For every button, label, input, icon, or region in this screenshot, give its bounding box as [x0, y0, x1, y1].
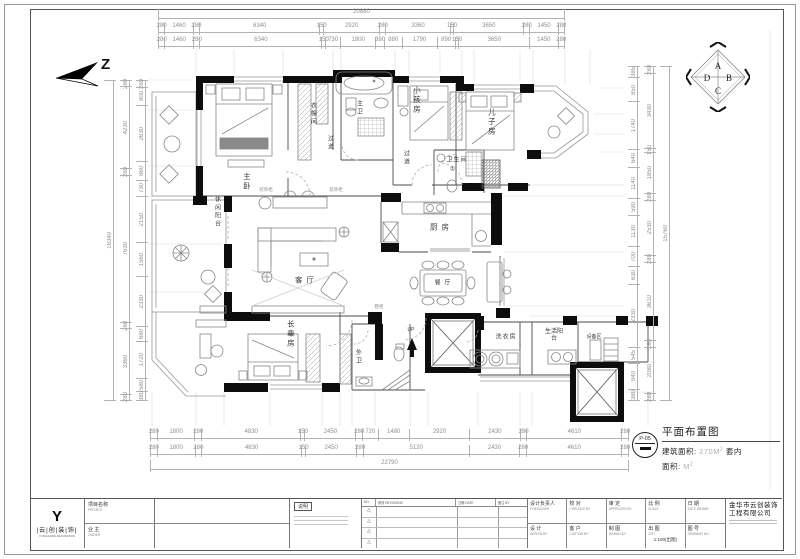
project-owner-labels: 项目名称 PROJECT 业 主 OWNER	[85, 499, 155, 548]
company-name-cell: 金华市云创装饰 工程有限公司	[726, 499, 782, 548]
dim-left-total: 16340	[104, 80, 116, 401]
dim-right-total: 15760	[660, 66, 672, 401]
owner-label: 业 主	[88, 526, 151, 533]
compass-diamond-icon	[686, 42, 750, 112]
room-label-master-bath: 主卫	[355, 100, 362, 116]
signature-cell: 设计负责人F.DESIGNER	[528, 499, 567, 524]
suite-area-line: 面积: M2	[662, 461, 782, 472]
compass-letter-c: C	[715, 86, 721, 96]
notes-box: 说明	[290, 499, 362, 548]
room-label-service-balcony: 生活阳台	[543, 329, 565, 343]
drawing-number-bubble: P-05	[632, 432, 658, 458]
notes-title: 说明	[294, 502, 312, 511]
room-label-equipment: 设备区	[586, 335, 601, 341]
logo-subtitle: YUNCHUANG DECORATION	[39, 534, 75, 538]
company-logo: Y |云|创|装|饰| YUNCHUANG DECORATION	[30, 499, 85, 548]
room-label-corridor-2: 过道	[402, 150, 409, 166]
building-area-line: 建筑面积: 270M2 套内	[662, 446, 782, 457]
drawing-title: 平面布置图	[662, 424, 780, 442]
drawing-info: P-05 平面布置图 建筑面积: 270M2 套内 面积: M2	[630, 424, 782, 472]
signature-cell: 出 图20171:100(出图)	[646, 524, 685, 549]
notes-line	[294, 516, 348, 518]
room-label-living-room: 客 厅	[295, 277, 315, 286]
dim-right-inner: 3858501740640114059011307006302330545940…	[628, 66, 640, 401]
revision-row: △	[362, 539, 527, 549]
dim-top-total: 20880	[158, 9, 565, 21]
company-address-line	[729, 520, 777, 521]
room-label-elders-room: 长辈房	[286, 320, 295, 349]
signature-cell: 审 定APPROVED BY	[607, 499, 646, 524]
label-shoe-cabinet: 鞋柜	[375, 304, 384, 310]
room-label-dining-room: 餐 厅	[435, 281, 452, 288]
revision-row: △	[362, 528, 527, 539]
notes-line	[294, 524, 348, 526]
revision-row: △	[362, 518, 527, 529]
compass-letter-a: A	[715, 61, 722, 71]
north-arrow-icon	[56, 62, 98, 86]
elevator-shafts	[428, 316, 621, 419]
room-label-son-room: 儿子房	[487, 108, 496, 137]
dim-right-outer: 28034301501850280253028036102802080280	[644, 66, 656, 401]
label-decor-cabinet-2: 装饰柜	[329, 187, 343, 193]
signature-grid: 设计负责人F.DESIGNER校 对CHECKED BY审 定APPROVED …	[528, 499, 726, 548]
dim-top-row2: 2801460280634015073018003908801790890150…	[158, 37, 565, 49]
label-decor-cabinet-1: 装饰柜	[259, 187, 273, 193]
room-label-kids-room: 小孩房	[412, 86, 421, 115]
compass-letter-d: D	[704, 73, 711, 83]
room-label-outer-bath: 外卫	[354, 349, 361, 365]
room-label-leisure-balcony: 休闲阳台	[213, 196, 220, 228]
room-label-laundry: 洗衣房	[495, 335, 516, 342]
logo-y-icon: Y	[52, 510, 62, 524]
logo-name: |云|创|装|饰|	[37, 525, 78, 534]
title-block: Y |云|创|装|饰| YUNCHUANG DECORATION 项目名称 PR…	[30, 498, 782, 548]
room-label-bathroom2-number: ①	[450, 167, 456, 174]
north-label: Z	[101, 56, 110, 73]
dim-top-row1: 2801460280634015029202803360150365028014…	[158, 23, 565, 35]
revision-row: △	[362, 507, 527, 518]
dim-left-outer: 280423028076302803360280	[120, 80, 132, 401]
dim-bottom-row2: 2801800280483015024502805120243028046102…	[150, 445, 629, 457]
room-label-corridor-1: 过道	[326, 135, 333, 151]
compass-letter-b: B	[726, 73, 732, 83]
signature-cell: 日 期DATE DRAWN	[686, 499, 725, 524]
room-label-master-bedroom: 主卧	[242, 173, 251, 192]
signature-cell: 客 户CUSTOM BY	[567, 524, 606, 549]
room-label-kitchen: 厨 房	[430, 224, 450, 233]
dim-left-inner: 2808002630860730215015602330680172058038…	[136, 80, 148, 401]
project-owner-values	[155, 499, 290, 548]
project-label: 项目名称	[88, 501, 151, 508]
signature-cell: 比 例SCALE	[646, 499, 685, 524]
signature-cell: 制 图DRAWN BY	[607, 524, 646, 549]
revision-header: NO. 修改 REVISIONS 日期 DATE 备注 BY	[362, 499, 527, 507]
drawing-number: P-05	[635, 435, 655, 444]
floorplan-sheet: Z A B C D 主卧 衣帽间 主卫 过道 过道 小孩房 儿子房 卫生间 ① …	[0, 0, 800, 559]
room-label-cloakroom: 衣帽间	[309, 102, 316, 126]
room-label-bathroom2: 卫生间	[446, 158, 467, 165]
signature-cell: 设 计DESIGN BY	[528, 524, 567, 549]
signature-cell: 图 号DRAWING NO.	[686, 524, 725, 549]
dim-bottom-total: 22790	[150, 460, 629, 472]
block-compass: A B C D	[686, 42, 750, 112]
revision-table: NO. 修改 REVISIONS 日期 DATE 备注 BY △ △ △ △	[362, 499, 528, 548]
signature-cell: 校 对CHECKED BY	[567, 499, 606, 524]
dim-bottom-row1: 2801800280483015024502807201480292024302…	[150, 429, 629, 441]
notes-line	[294, 520, 348, 522]
drawing-number-dash	[640, 447, 651, 450]
company-phone-line	[729, 523, 777, 524]
room-label-up: UP	[408, 328, 415, 334]
